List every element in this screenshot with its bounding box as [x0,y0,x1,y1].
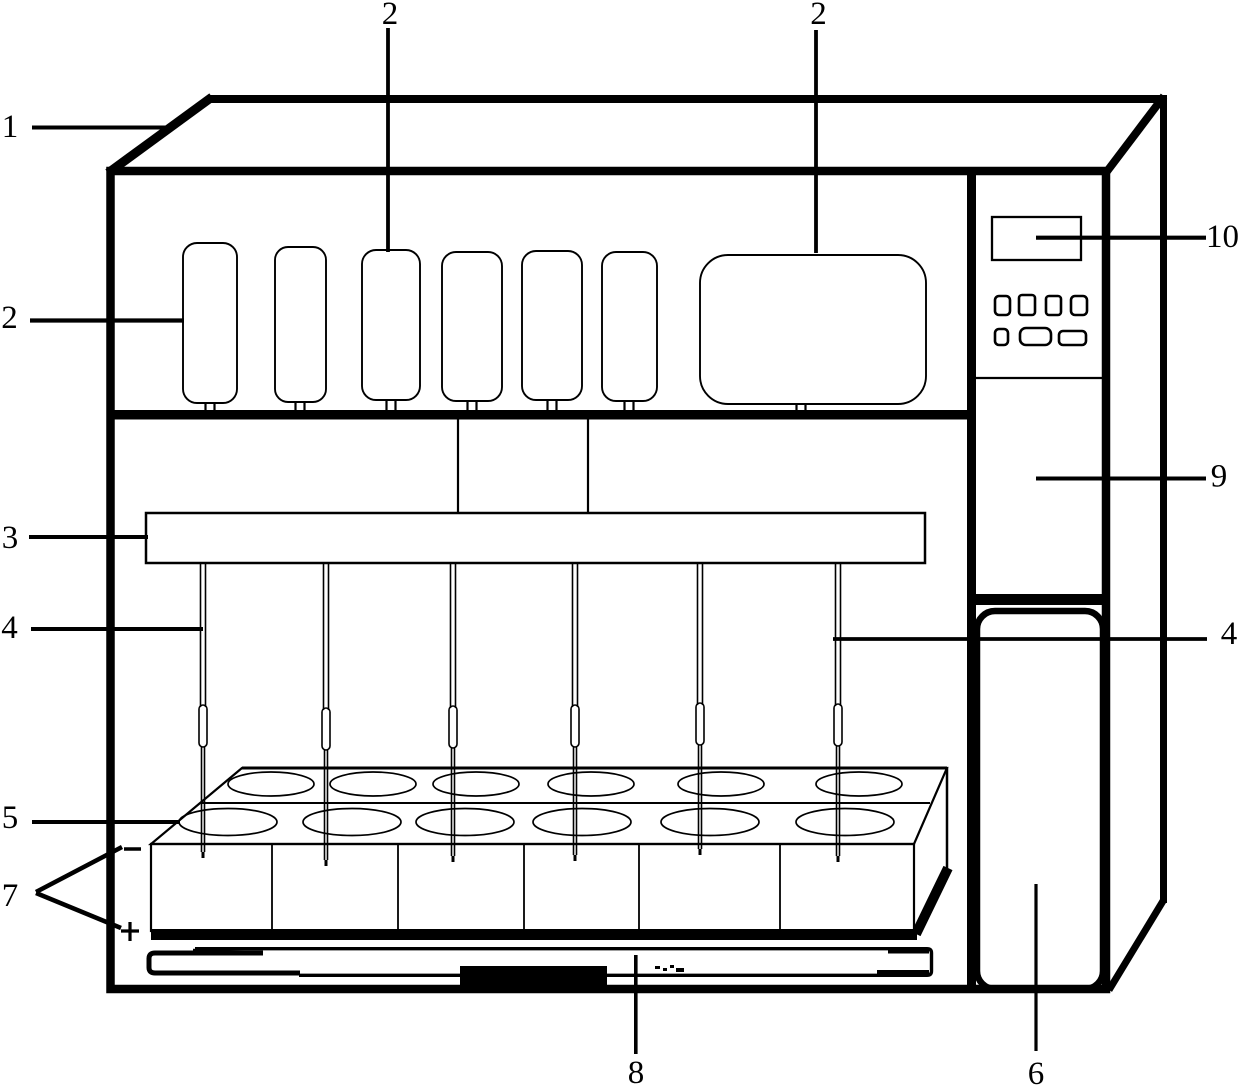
svg-text:2: 2 [382,0,399,32]
svg-text:2: 2 [1,300,18,336]
svg-text:2: 2 [810,0,827,32]
svg-text:5: 5 [2,800,19,836]
svg-text:7: 7 [2,878,19,914]
svg-text:9: 9 [1211,459,1228,495]
svg-text:6: 6 [1028,1056,1045,1087]
svg-text:4: 4 [1,610,18,646]
svg-text:8: 8 [628,1055,645,1087]
svg-text:1: 1 [2,109,19,145]
svg-text:3: 3 [2,520,19,556]
svg-text:4: 4 [1221,616,1238,652]
svg-text:10: 10 [1206,219,1239,255]
